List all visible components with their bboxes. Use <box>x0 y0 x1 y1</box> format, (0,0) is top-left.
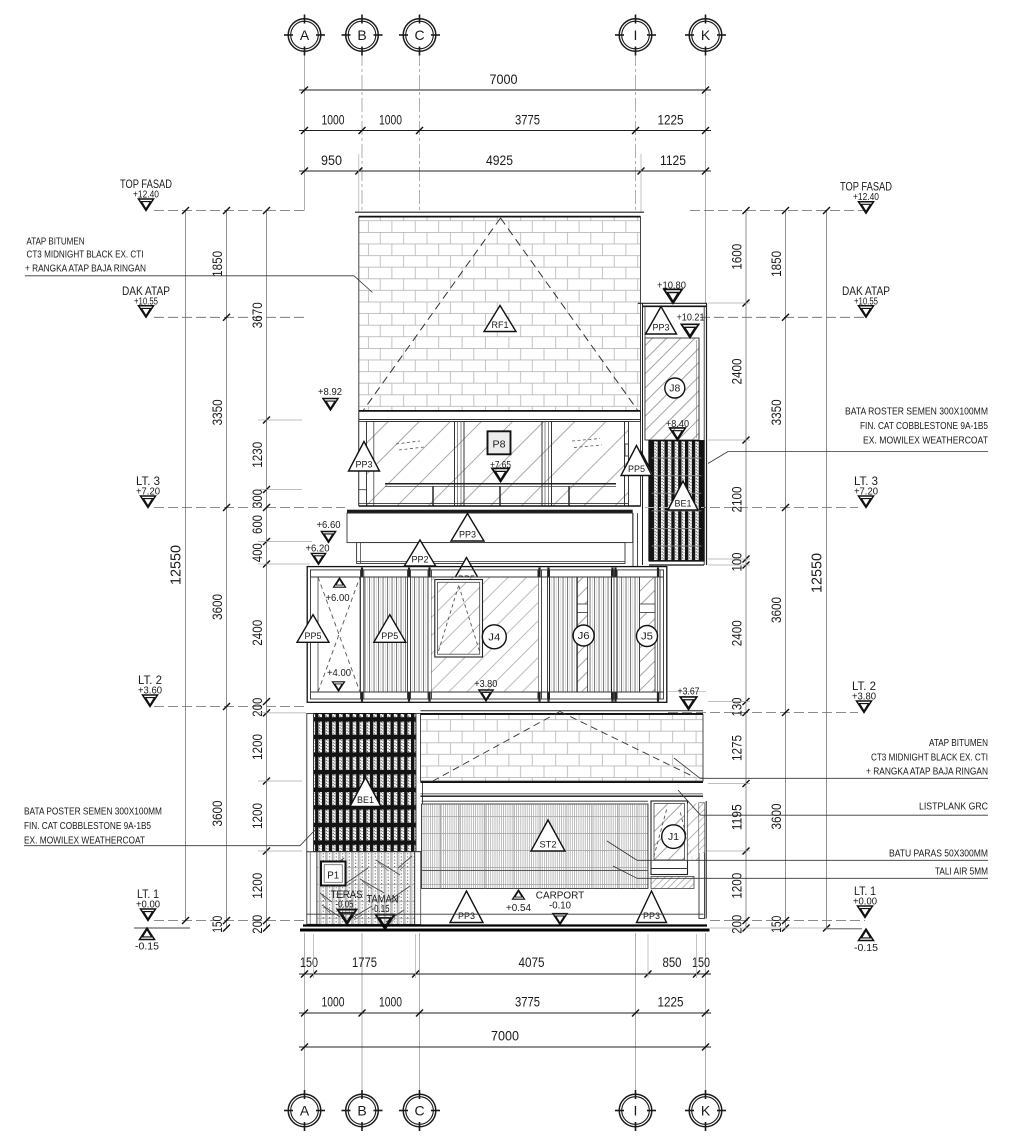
svg-text:12550: 12550 <box>810 553 826 593</box>
svg-text:ST2: ST2 <box>540 840 557 851</box>
svg-text:400: 400 <box>249 543 265 562</box>
svg-text:2400: 2400 <box>729 358 745 384</box>
svg-text:3600: 3600 <box>768 803 784 829</box>
svg-text:-0.15: -0.15 <box>135 942 159 953</box>
svg-text:1200: 1200 <box>249 873 265 899</box>
svg-text:PP3: PP3 <box>643 911 660 922</box>
svg-text:850: 850 <box>663 955 682 970</box>
svg-text:130: 130 <box>729 697 745 716</box>
svg-text:+10.21: +10.21 <box>677 312 705 324</box>
svg-text:ATAP BITUMEN: ATAP BITUMEN <box>27 236 85 248</box>
svg-text:B: B <box>357 1103 366 1119</box>
svg-text:PP3: PP3 <box>459 530 476 541</box>
svg-text:BATU PARAS 50X300MM: BATU PARAS 50X300MM <box>889 848 988 860</box>
svg-text:4925: 4925 <box>486 153 513 168</box>
svg-text:1225: 1225 <box>658 113 684 128</box>
svg-text:+ RANGKA ATAP BAJA RINGAN: + RANGKA ATAP BAJA RINGAN <box>25 263 146 275</box>
svg-text:3600: 3600 <box>209 594 225 620</box>
svg-text:BATA POSTER SEMEN 300X100MM: BATA POSTER SEMEN 300X100MM <box>24 806 162 818</box>
svg-text:2400: 2400 <box>249 620 265 646</box>
svg-text:PP3: PP3 <box>653 323 670 334</box>
svg-text:+6.60: +6.60 <box>317 520 341 531</box>
svg-text:1000: 1000 <box>322 995 345 1010</box>
svg-text:PP5: PP5 <box>305 631 322 642</box>
svg-text:TALI AIR 5MM: TALI AIR 5MM <box>935 866 988 878</box>
svg-text:J8: J8 <box>669 384 680 395</box>
svg-text:150: 150 <box>692 955 710 970</box>
svg-text:1225: 1225 <box>658 995 684 1010</box>
svg-text:+3.67: +3.67 <box>678 687 700 698</box>
svg-text:RF1: RF1 <box>492 320 509 331</box>
svg-text:J5: J5 <box>641 631 653 643</box>
svg-text:EX. MOWILEX WEATHERCOAT: EX. MOWILEX WEATHERCOAT <box>863 435 988 447</box>
svg-text:2400: 2400 <box>729 620 745 646</box>
svg-text:PP3: PP3 <box>458 911 475 922</box>
svg-text:-0.10: -0.10 <box>549 901 571 912</box>
svg-text:100: 100 <box>729 552 745 571</box>
svg-text:CT3 MIDNIGHT BLACK EX. CTI: CT3 MIDNIGHT BLACK EX. CTI <box>27 249 144 261</box>
svg-text:PP2: PP2 <box>412 555 429 566</box>
svg-text:BATA ROSTER SEMEN 300X100MM: BATA ROSTER SEMEN 300X100MM <box>845 406 988 418</box>
svg-text:A: A <box>300 27 310 43</box>
svg-text:3600: 3600 <box>768 597 784 623</box>
svg-text:200: 200 <box>249 915 265 934</box>
svg-text:J6: J6 <box>578 630 590 642</box>
svg-text:P1: P1 <box>327 870 339 882</box>
svg-text:7000: 7000 <box>490 72 518 87</box>
svg-text:+4.00: +4.00 <box>327 668 351 679</box>
svg-text:1275: 1275 <box>729 735 745 761</box>
svg-text:1230: 1230 <box>249 442 265 468</box>
svg-text:EX. MOWILEX WEATHERCOAT: EX. MOWILEX WEATHERCOAT <box>24 835 145 847</box>
svg-text:7000: 7000 <box>491 1029 519 1044</box>
svg-text:A: A <box>300 1103 310 1119</box>
svg-text:C: C <box>414 1103 424 1119</box>
svg-text:+0.54: +0.54 <box>506 903 531 914</box>
svg-text:1200: 1200 <box>729 873 745 899</box>
svg-text:+6.00: +6.00 <box>326 593 350 604</box>
svg-text:1200: 1200 <box>249 734 265 760</box>
svg-text:CT3 MIDNIGHT BLACK EX. CTI: CT3 MIDNIGHT BLACK EX. CTI <box>871 752 988 764</box>
svg-text:4075: 4075 <box>519 955 545 970</box>
svg-text:+3.80: +3.80 <box>474 679 497 690</box>
svg-text:PP5: PP5 <box>381 631 398 642</box>
svg-text:3350: 3350 <box>768 399 784 425</box>
svg-text:12550: 12550 <box>169 545 185 585</box>
svg-text:BE1: BE1 <box>675 499 692 510</box>
svg-text:1200: 1200 <box>249 803 265 829</box>
svg-text:150: 150 <box>300 955 318 970</box>
svg-text:1775: 1775 <box>352 955 377 970</box>
svg-text:K: K <box>701 1103 711 1119</box>
svg-text:PP3: PP3 <box>356 460 373 471</box>
svg-text:-0.15: -0.15 <box>854 943 878 954</box>
svg-text:FIN. CAT COBBLESTONE 9A-1B5: FIN. CAT COBBLESTONE 9A-1B5 <box>24 820 151 832</box>
svg-text:200: 200 <box>729 915 745 934</box>
svg-text:1000: 1000 <box>379 113 402 128</box>
svg-text:3350: 3350 <box>209 399 225 425</box>
svg-text:FIN. CAT COBBLESTONE 9A-1B5: FIN. CAT COBBLESTONE 9A-1B5 <box>860 420 988 432</box>
svg-text:B: B <box>357 27 366 43</box>
svg-text:3600: 3600 <box>209 800 225 826</box>
svg-text:3775: 3775 <box>515 995 540 1010</box>
svg-text:I: I <box>634 1103 638 1119</box>
svg-text:1125: 1125 <box>660 153 686 168</box>
svg-text:K: K <box>701 27 711 43</box>
svg-text:1195: 1195 <box>729 804 745 830</box>
svg-text:1850: 1850 <box>768 251 784 277</box>
svg-text:C: C <box>414 27 424 43</box>
svg-text:J1: J1 <box>668 831 679 843</box>
svg-text:3670: 3670 <box>249 302 265 328</box>
svg-text:2100: 2100 <box>729 486 745 512</box>
svg-text:P8: P8 <box>493 439 506 451</box>
svg-text:200: 200 <box>249 698 265 717</box>
svg-text:-0.15: -0.15 <box>372 904 390 915</box>
svg-text:600: 600 <box>249 515 265 534</box>
svg-text:1600: 1600 <box>729 244 745 270</box>
svg-text:LISTPLANK GRC: LISTPLANK GRC <box>919 801 988 813</box>
svg-text:PP5: PP5 <box>628 464 645 475</box>
svg-text:300: 300 <box>249 489 265 508</box>
svg-text:ATAP BITUMEN: ATAP BITUMEN <box>929 737 988 749</box>
svg-text:1850: 1850 <box>209 251 225 277</box>
svg-text:150: 150 <box>209 916 225 933</box>
svg-text:1000: 1000 <box>322 113 345 128</box>
svg-text:3775: 3775 <box>515 113 540 128</box>
svg-text:+ RANGKA ATAP BAJA RINGAN: + RANGKA ATAP BAJA RINGAN <box>866 766 988 778</box>
svg-text:950: 950 <box>321 153 342 168</box>
svg-text:BE1: BE1 <box>357 795 374 806</box>
svg-text:I: I <box>634 27 638 43</box>
svg-text:J4: J4 <box>488 631 500 643</box>
svg-text:+8.92: +8.92 <box>318 387 342 398</box>
svg-text:150: 150 <box>768 916 784 933</box>
svg-text:1000: 1000 <box>379 995 402 1010</box>
